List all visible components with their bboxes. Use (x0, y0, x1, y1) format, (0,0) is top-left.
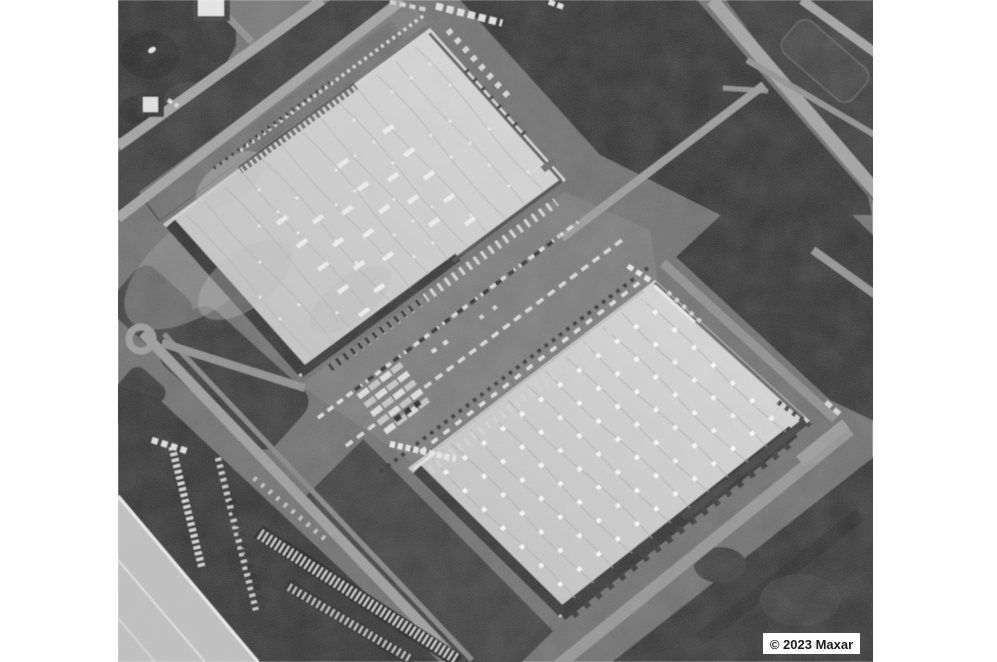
svg-text:© 2023 Maxar: © 2023 Maxar (770, 637, 853, 652)
